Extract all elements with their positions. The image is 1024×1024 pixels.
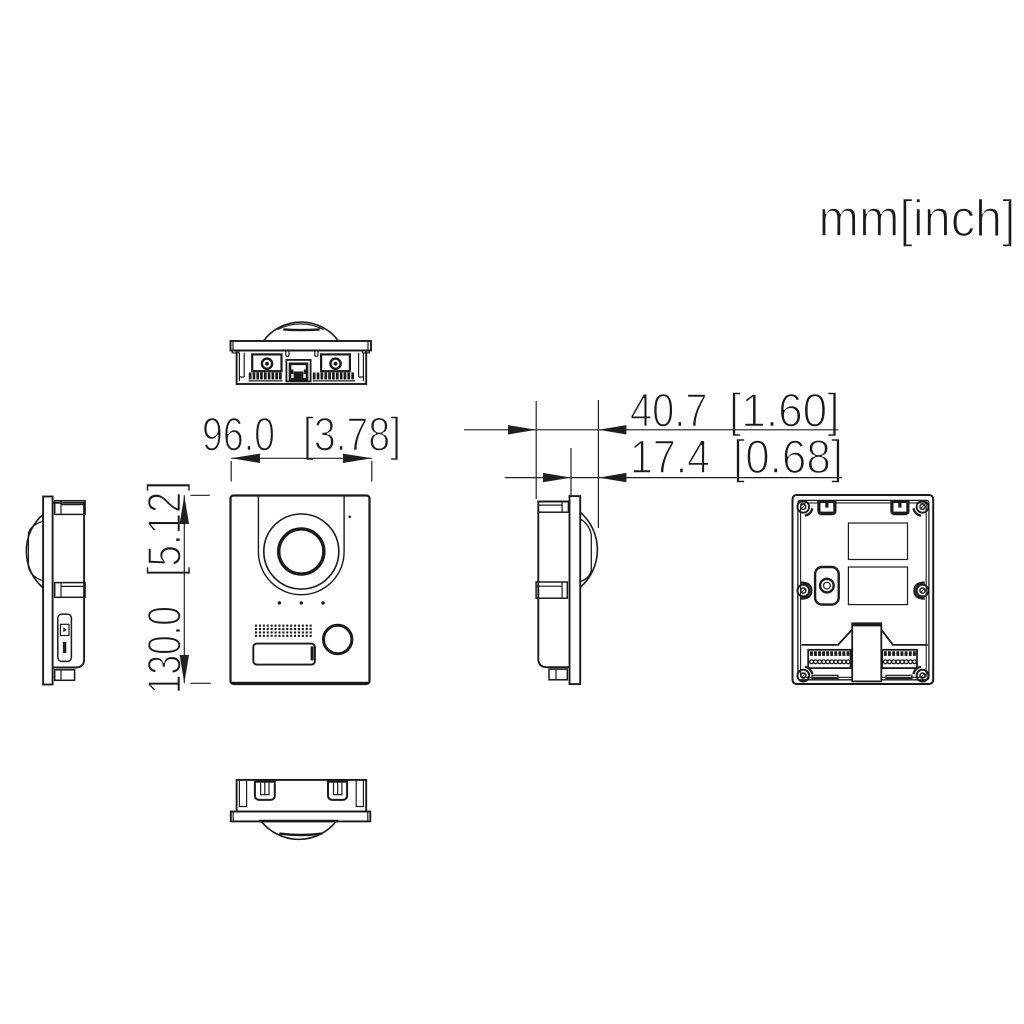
- svg-text:96.0: 96.0: [202, 407, 275, 460]
- svg-text:17.4: 17.4: [630, 430, 710, 483]
- svg-text:[1.60]: [1.60]: [729, 383, 840, 436]
- svg-text:40.7: 40.7: [630, 383, 708, 436]
- svg-text:[3.78]: [3.78]: [303, 407, 401, 460]
- svg-text:130.0: 130.0: [138, 606, 191, 694]
- svg-text:[5.12]: [5.12]: [138, 481, 191, 577]
- svg-text:[0.68]: [0.68]: [733, 430, 843, 483]
- svg-text:mm[inch]: mm[inch]: [819, 190, 1016, 248]
